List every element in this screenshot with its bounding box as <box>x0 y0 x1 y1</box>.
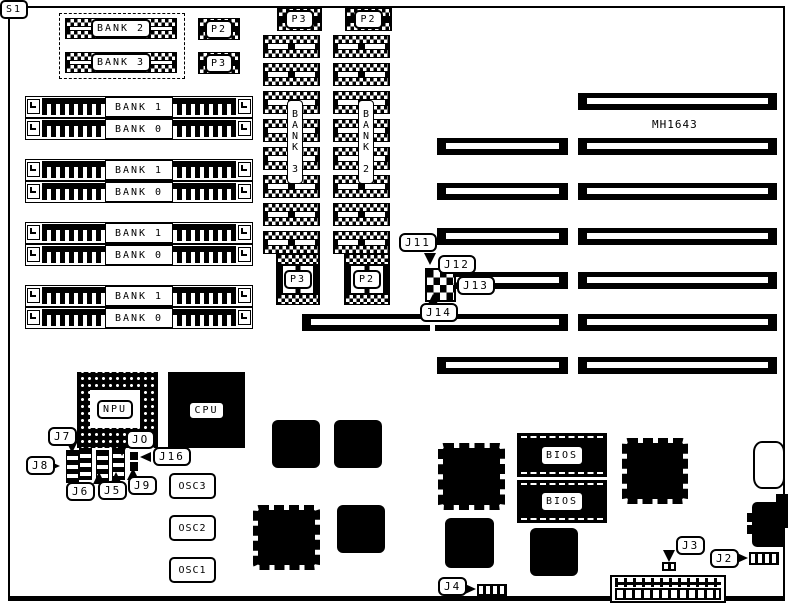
dip-body <box>338 44 385 49</box>
simm-latch-left <box>27 162 40 177</box>
simm-slot: BANK 1 <box>25 159 253 181</box>
board-model-text: MH1643 <box>652 118 698 131</box>
dip-body <box>268 240 315 245</box>
simm-latch-left <box>27 310 40 325</box>
oscillator-osc1: OSC1 <box>169 557 216 583</box>
simm-label: BANK 1 <box>105 160 173 180</box>
npu-label: NPU <box>97 400 133 419</box>
callout-j2: J2 <box>710 549 739 568</box>
oscillator-osc2: OSC2 <box>169 515 216 541</box>
dip-chip-p3-column: P3 <box>277 8 322 31</box>
callout-j4: J4 <box>438 577 467 596</box>
expansion-slot <box>578 93 777 110</box>
dip-chip <box>263 63 320 86</box>
callout-j3: J3 <box>676 536 705 555</box>
jumper-header-j2 <box>749 552 779 565</box>
dip-chip <box>263 231 320 254</box>
simm-latch-right <box>238 99 251 114</box>
arrow-j3 <box>663 550 675 562</box>
dip-chip <box>333 63 390 86</box>
expansion-slot <box>578 357 777 374</box>
simm-latch-right <box>238 225 251 240</box>
simm-label: BANK 0 <box>105 245 173 265</box>
arrow-j11 <box>424 253 436 265</box>
keyboard-connector-outline <box>753 441 785 489</box>
expansion-slot <box>437 357 568 374</box>
simm-latch-left <box>27 99 40 114</box>
motherboard-diagram: BANK 2 BANK 3 P2 P3 BANK 1 BANK 0 BANK 1… <box>0 0 791 608</box>
expansion-slot <box>437 138 568 155</box>
qfp-chip <box>253 505 320 570</box>
simm-latch-right <box>238 310 251 325</box>
callout-j6: J6 <box>66 482 95 501</box>
dip-body <box>268 212 315 217</box>
dip-chip-bank2: BANK 2 <box>65 18 177 39</box>
simm-latch-right <box>238 184 251 199</box>
p3-label: P3 <box>284 270 312 289</box>
p3-label: P3 <box>285 10 313 29</box>
simm-label: BANK 0 <box>105 182 173 202</box>
jumper-j16-pins <box>130 452 138 460</box>
simm-slot: BANK 1 <box>25 96 253 118</box>
dip-body <box>338 184 385 189</box>
ic-chip <box>445 518 494 568</box>
power-connector-socket <box>615 588 721 600</box>
dip-chip-p3-bottom: P3 <box>276 254 320 305</box>
simm-slot: BANK 0 <box>25 181 253 203</box>
arrow-j16 <box>140 452 151 462</box>
callout-j16: J16 <box>153 447 191 466</box>
bank3-vertical-label: BANK 3 <box>287 100 303 184</box>
qfp-chip <box>622 438 688 504</box>
callout-j0: JO <box>126 430 155 449</box>
dip-body <box>338 72 385 77</box>
bios-chip-top: BIOS <box>517 433 607 477</box>
dip-chip-p2-column: P2 <box>345 8 392 31</box>
callout-j9: J9 <box>128 476 157 495</box>
expansion-slot <box>578 228 777 245</box>
dip-chip-p3-top: P3 <box>198 52 240 74</box>
simm-slot: BANK 1 <box>25 285 253 307</box>
p2-label: P2 <box>205 20 233 39</box>
connector-tab <box>747 525 753 534</box>
dip-chip <box>333 231 390 254</box>
simm-latch-right <box>238 121 251 136</box>
bank3-label: BANK 3 <box>91 53 151 72</box>
dip-chip <box>263 203 320 226</box>
bank2-vertical-label: BANK 2 <box>358 100 374 184</box>
simm-latch-right <box>238 247 251 262</box>
simm-latch-right <box>238 162 251 177</box>
simm-slot: BANK 0 <box>25 307 253 329</box>
expansion-slot <box>437 228 568 245</box>
simm-latch-left <box>27 288 40 303</box>
jumper-header-j7 <box>79 448 92 480</box>
simm-latch-left <box>27 247 40 262</box>
connector-tab <box>747 513 753 522</box>
power-connector <box>610 575 726 603</box>
bios-label: BIOS <box>540 491 584 512</box>
ic-chip <box>337 505 385 553</box>
dip-body <box>268 44 315 49</box>
dip-body <box>338 240 385 245</box>
qfp-chip <box>438 443 505 510</box>
simm-label: BANK 1 <box>105 223 173 243</box>
callout-j12: J12 <box>438 255 476 274</box>
expansion-slot <box>437 183 568 200</box>
jumper-header-j8 <box>66 450 79 483</box>
simm-latch-left <box>27 184 40 199</box>
callout-j11: J11 <box>399 233 437 252</box>
keyboard-connector <box>752 502 785 547</box>
jumper-header-j3 <box>662 562 676 571</box>
dip-chip <box>263 35 320 58</box>
dip-chip <box>333 35 390 58</box>
simm-label: BANK 0 <box>105 308 173 328</box>
simm-label: BANK 1 <box>105 286 173 306</box>
jumper-header-j4 <box>477 584 507 596</box>
ic-chip <box>334 420 382 468</box>
p2-label: P2 <box>353 270 381 289</box>
cpu-label: CPU <box>188 401 224 420</box>
simm-latch-left <box>27 225 40 240</box>
expansion-slot <box>578 314 777 331</box>
dip-body <box>338 212 385 217</box>
simm-label: BANK 0 <box>105 119 173 139</box>
dip-chip <box>333 203 390 226</box>
callout-j5: J5 <box>98 481 127 500</box>
p3-label: P3 <box>205 54 233 73</box>
simm-slot: BANK 0 <box>25 118 253 140</box>
expansion-slot <box>578 272 777 289</box>
dip-chip-p2-top: P2 <box>198 18 240 40</box>
ic-chip <box>530 528 578 576</box>
bank2-label: BANK 2 <box>91 19 151 38</box>
dip-body <box>268 184 315 189</box>
bios-label: BIOS <box>540 445 584 466</box>
simm-label: BANK 1 <box>105 97 173 117</box>
callout-j14: J14 <box>420 303 458 322</box>
simm-latch-right <box>238 288 251 303</box>
simm-slot: BANK 0 <box>25 244 253 266</box>
expansion-slot <box>578 138 777 155</box>
simm-slot: BANK 1 <box>25 222 253 244</box>
expansion-slot <box>578 183 777 200</box>
p2-label: P2 <box>354 10 382 29</box>
ic-chip <box>272 420 320 468</box>
cpu-chip: CPU <box>168 372 245 448</box>
callout-j8: J8 <box>26 456 55 475</box>
npu-center: NPU <box>90 390 140 428</box>
callout-j7: J7 <box>48 427 77 446</box>
oscillator-osc3: OSC3 <box>169 473 216 499</box>
s1-label: S1 <box>0 0 28 19</box>
dip-body <box>268 72 315 77</box>
dip-chip-p2-bottom: P2 <box>344 254 390 305</box>
bios-chip-bottom: BIOS <box>517 480 607 523</box>
simm-latch-left <box>27 121 40 136</box>
dip-chip-bank3: BANK 3 <box>65 52 177 73</box>
callout-j13: J13 <box>457 276 495 295</box>
power-connector-pins <box>615 578 721 587</box>
